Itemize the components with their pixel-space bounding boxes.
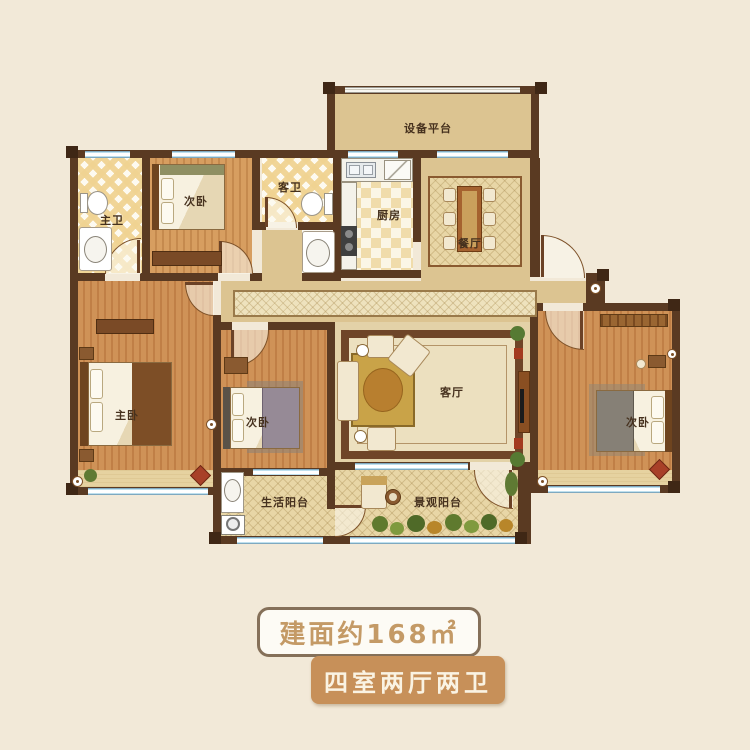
- bed-mid-headboard: [223, 387, 230, 449]
- door-leaf-master-bath: [137, 240, 140, 273]
- wall-corner: [515, 532, 527, 544]
- floor-entry-hall: [538, 281, 586, 303]
- nightstand: [79, 347, 94, 360]
- floor-plan-canvas: 设备平台 主卫 次卧 客卫 厨房 餐厅 主卧 次卧 客厅 次卧 生活阳台 景观阳…: [0, 0, 750, 750]
- balcony-chair-back: [361, 476, 387, 485]
- wall: [327, 468, 335, 509]
- wall: [341, 270, 421, 278]
- layout-badge-text: 四室两厅两卫: [324, 663, 492, 698]
- wall: [70, 150, 78, 495]
- pillow: [232, 419, 244, 442]
- washing-machine-drum: [226, 517, 240, 531]
- nightstand: [79, 449, 94, 462]
- window-kitchen-top: [348, 151, 398, 158]
- stove-burner: [345, 230, 353, 238]
- wardrobe-e: [600, 314, 668, 327]
- room-label-view-balcony: 景观阳台: [414, 494, 462, 510]
- window-equipment-top: [345, 87, 520, 93]
- dining-chair: [483, 236, 496, 250]
- kitchen-sink-basin: [349, 165, 360, 175]
- flower-pot: [514, 438, 523, 449]
- side-table: [356, 344, 369, 357]
- sink-basin-icon: [84, 236, 107, 263]
- fridge-icon: [384, 160, 411, 180]
- sink-basin-icon: [306, 239, 330, 267]
- side-table: [354, 430, 367, 443]
- wall: [327, 86, 335, 158]
- room-label-guest-bath: 客卫: [278, 179, 302, 195]
- wall: [531, 86, 539, 158]
- armchair: [367, 427, 396, 451]
- laundry-basin: [224, 479, 241, 502]
- window-bedroom-e-bay: [548, 486, 660, 493]
- corridor-rug: [233, 290, 537, 317]
- wall-corner: [668, 481, 680, 493]
- bed-e-headboard: [665, 390, 672, 452]
- wall: [583, 303, 680, 311]
- kitchen-sink-basin: [363, 165, 373, 175]
- wall: [268, 322, 333, 330]
- dresser-mid: [224, 357, 248, 374]
- room-label-master-bedroom: 主卧: [115, 407, 139, 423]
- plant-icon: [510, 452, 525, 467]
- room-label-equipment-platform: 设备平台: [404, 120, 452, 136]
- door-leaf-bedroom-e: [580, 311, 583, 349]
- balcony-table-top: [389, 493, 397, 501]
- door-leaf-entry: [541, 235, 544, 277]
- pillow: [651, 396, 664, 419]
- drain-symbol: [590, 283, 601, 294]
- room-label-bedroom-e: 次卧: [626, 414, 650, 430]
- plant-icon: [445, 514, 462, 531]
- door-arc-entry: [542, 235, 585, 278]
- drain-symbol: [206, 419, 217, 430]
- area-badge-text: 建面约168㎡: [279, 614, 458, 651]
- wall: [213, 315, 221, 544]
- window-master-bath-top: [85, 151, 130, 158]
- plant-icon: [510, 326, 525, 341]
- wall-corner: [597, 269, 609, 281]
- pillow: [90, 402, 103, 432]
- wall: [70, 273, 105, 281]
- plant-icon: [390, 522, 404, 535]
- stool: [636, 359, 646, 369]
- dining-chair: [483, 188, 496, 202]
- area-badge: 建面约168㎡: [257, 607, 481, 657]
- master-bed-throw: [132, 363, 171, 445]
- window-dining-top: [437, 151, 508, 158]
- drain-symbol: [537, 476, 548, 487]
- plant-icon: [427, 521, 442, 534]
- sofa: [337, 361, 359, 421]
- wall-corner: [66, 146, 78, 158]
- window-bedroom-mid-south: [253, 469, 319, 475]
- plant-icon: [499, 519, 513, 532]
- tv-icon: [520, 389, 524, 423]
- wall: [302, 273, 341, 281]
- wall: [413, 150, 421, 242]
- plant-icon: [84, 469, 97, 482]
- wall: [221, 322, 232, 330]
- window-bedroom-nw-top: [172, 151, 235, 158]
- master-bed-headboard: [80, 362, 88, 446]
- pillow: [232, 393, 244, 416]
- plant-icon: [464, 520, 479, 533]
- plant-icon: [407, 515, 425, 532]
- pillow: [90, 369, 103, 399]
- wall: [530, 158, 540, 277]
- room-label-life-balcony: 生活阳台: [261, 494, 309, 510]
- room-label-kitchen: 厨房: [377, 207, 401, 223]
- room-label-master-bath: 主卫: [100, 212, 124, 228]
- door-leaf-master-bedroom: [185, 282, 213, 285]
- toilet-icon: [301, 192, 323, 216]
- pillow: [161, 202, 174, 224]
- room-label-bedroom-mid: 次卧: [246, 414, 270, 430]
- window-view-balcony: [350, 537, 515, 544]
- dining-chair: [443, 188, 456, 202]
- drain-symbol: [667, 349, 677, 359]
- wall: [327, 322, 335, 470]
- floor-guest-bath-passage: [262, 230, 302, 281]
- dining-chair: [443, 212, 456, 226]
- wall: [140, 273, 218, 281]
- room-label-living: 客厅: [440, 384, 464, 400]
- flower-pot: [514, 348, 523, 359]
- pillow: [161, 178, 174, 200]
- room-label-bedroom-nw: 次卧: [184, 193, 208, 209]
- toilet-tank-icon: [324, 193, 333, 215]
- bed-nw-headboard: [152, 164, 159, 230]
- wall: [672, 303, 680, 493]
- plant-icon: [505, 472, 518, 496]
- dining-chair: [443, 236, 456, 250]
- wall: [250, 273, 262, 281]
- layout-badge: 四室两厅两卫: [311, 656, 505, 704]
- wall: [252, 158, 260, 230]
- pillow: [651, 421, 664, 444]
- wall-corner: [668, 299, 680, 311]
- wall-corner: [535, 82, 547, 94]
- bench: [648, 355, 666, 368]
- wall: [252, 222, 266, 230]
- stove-burner: [345, 243, 353, 251]
- living-rug-medallion: [363, 368, 403, 412]
- room-label-dining: 餐厅: [458, 235, 482, 251]
- dining-chair: [483, 212, 496, 226]
- dresser-nw: [152, 251, 222, 266]
- plant-icon: [372, 516, 388, 532]
- window-master-bay: [88, 488, 208, 495]
- wall: [298, 222, 335, 230]
- window-life-balcony: [237, 537, 323, 544]
- plant-icon: [481, 514, 497, 530]
- wall-corner: [323, 82, 335, 94]
- window-living-south: [355, 463, 468, 470]
- drain-symbol: [72, 476, 83, 487]
- wall-corner: [209, 532, 221, 544]
- door-leaf-guest-bath: [265, 197, 268, 227]
- wall: [142, 158, 150, 277]
- master-dresser: [96, 319, 154, 334]
- bed-nw-canopy: [160, 165, 224, 175]
